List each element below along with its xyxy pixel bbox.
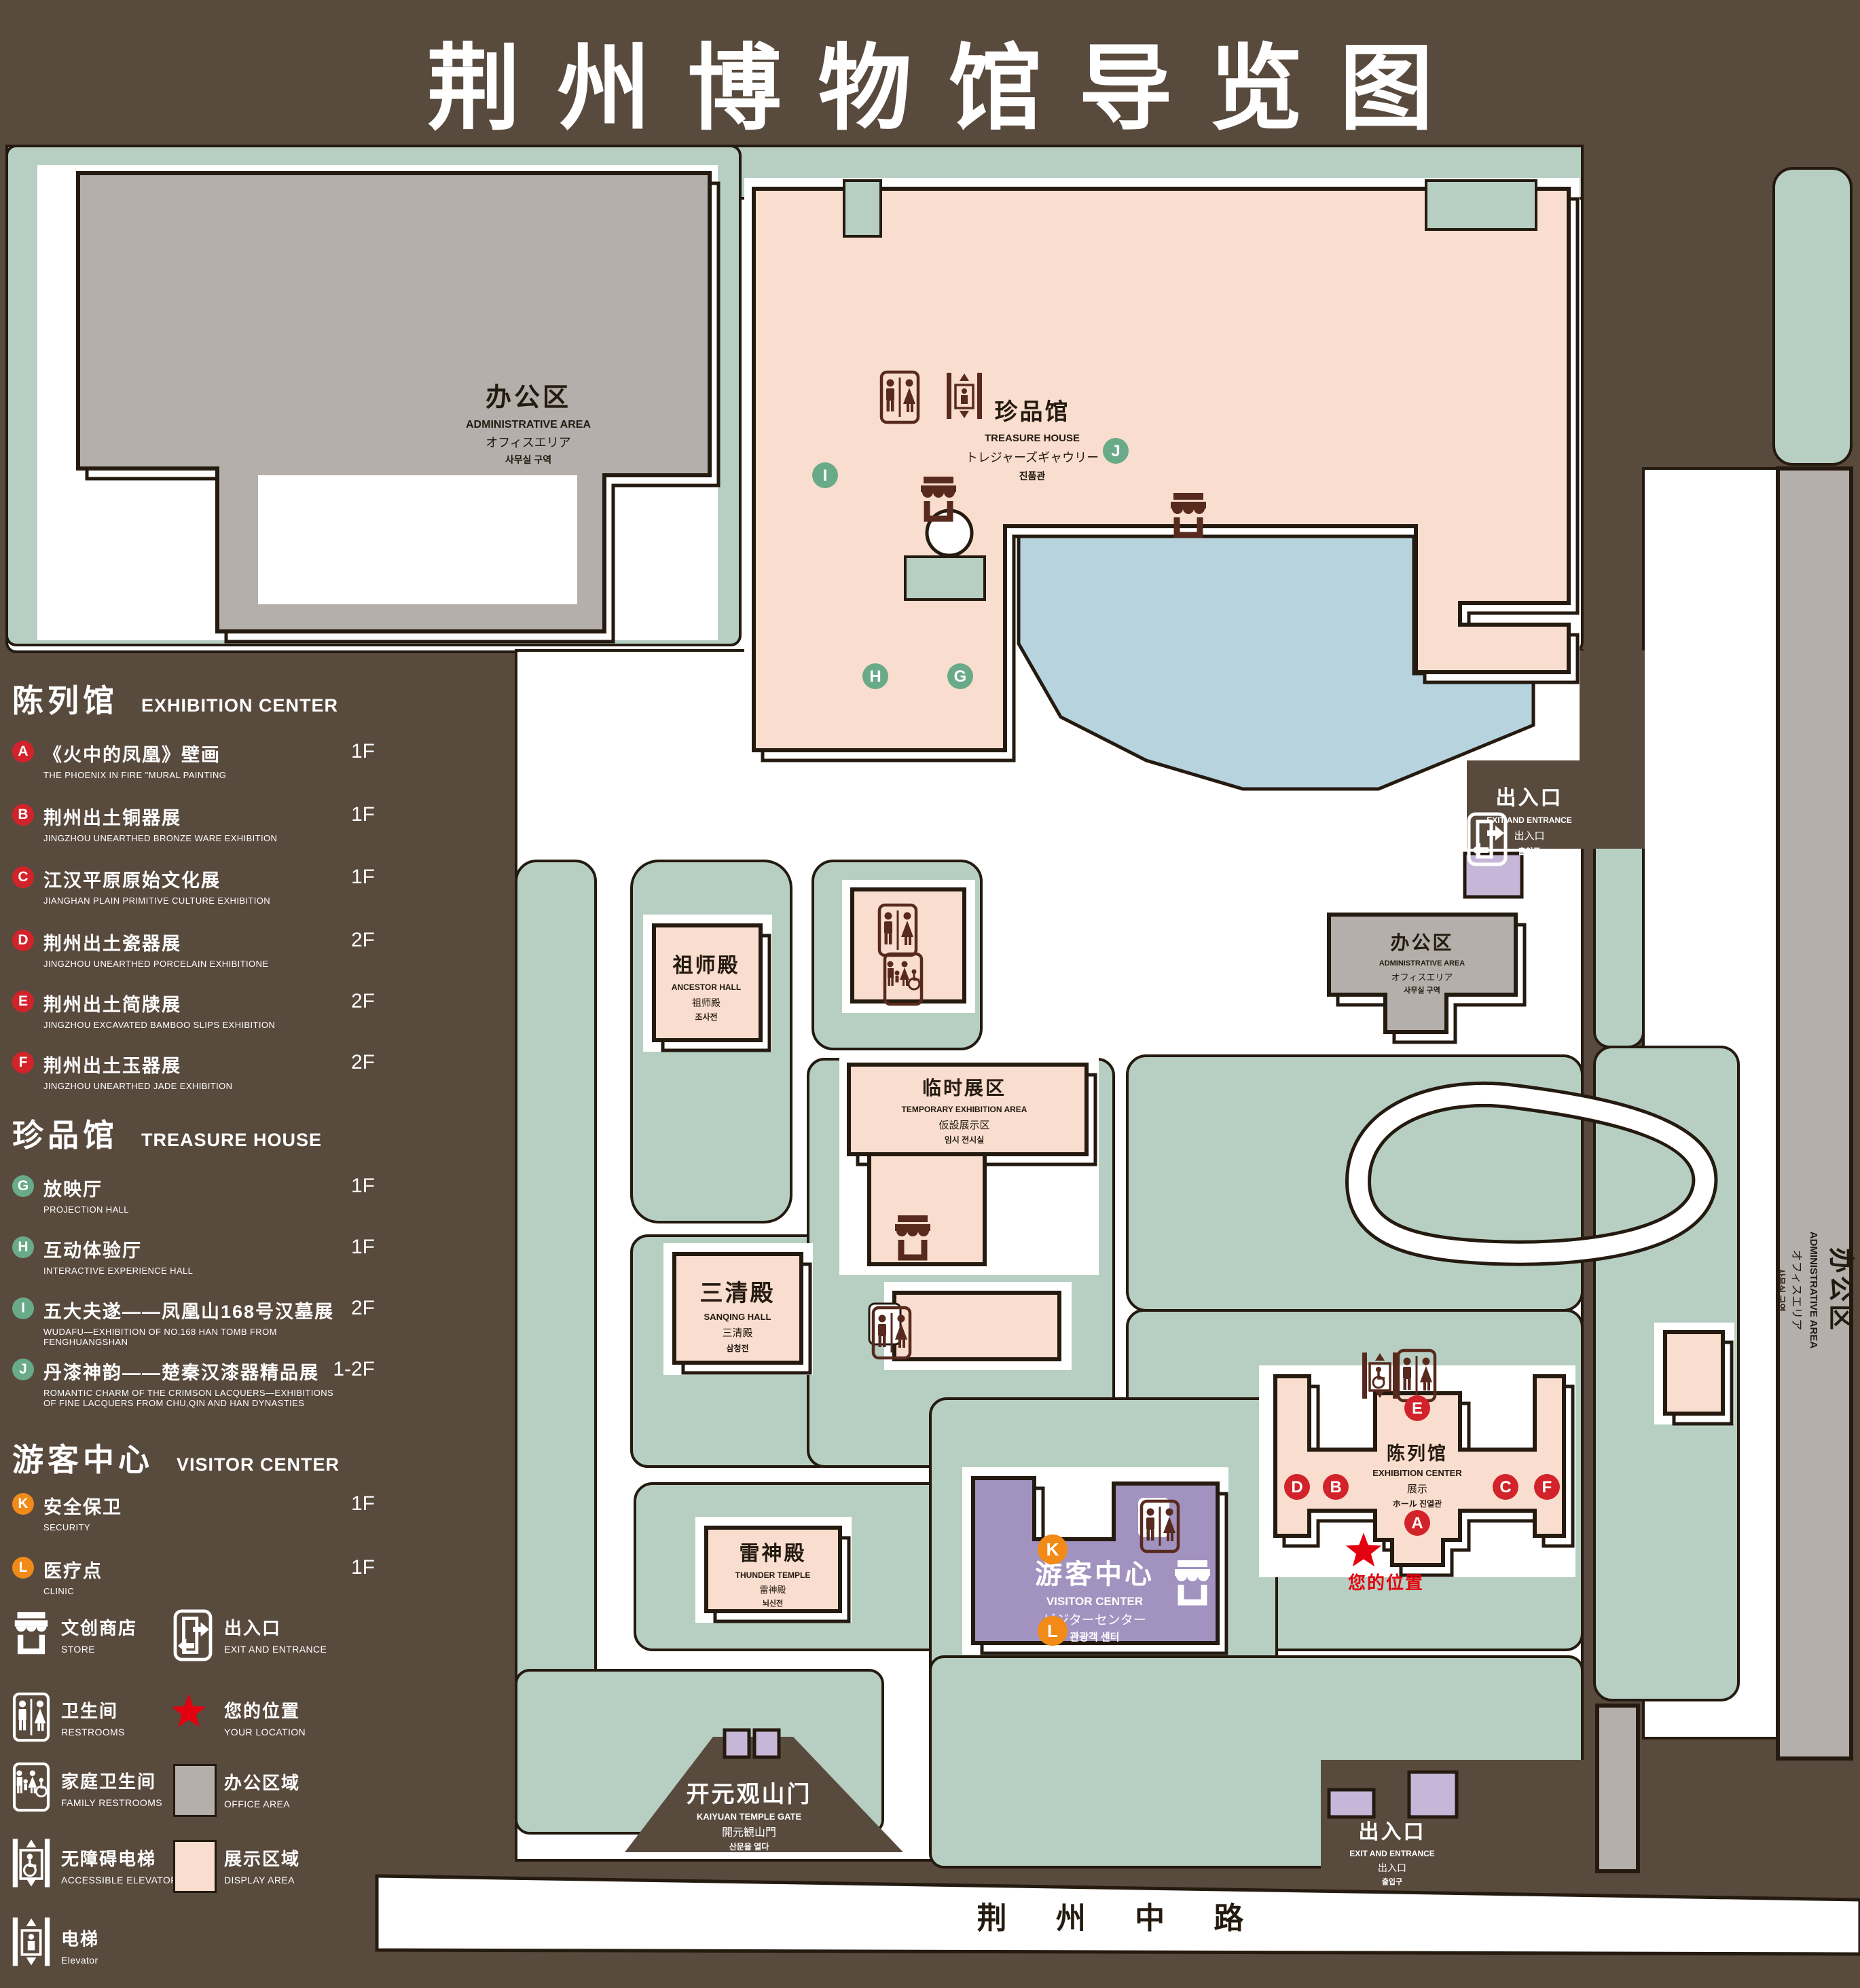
svg-text:THUNDER TEMPLE: THUNDER TEMPLE (735, 1570, 811, 1580)
svg-text:オフィスエリア: オフィスエリア (486, 436, 571, 449)
svg-text:뇌신전: 뇌신전 (763, 1598, 783, 1608)
svg-text:G: G (954, 667, 967, 686)
facility-store: 文创商店STORE (61, 1615, 137, 1655)
svg-text:EXIT AND ENTRANCE: EXIT AND ENTRANCE (1487, 815, 1572, 825)
badge-D: D (12, 929, 34, 951)
legend-item-G: G 放映厅PROJECTION HALL 1F (12, 1175, 384, 1215)
svg-text:H: H (869, 667, 881, 686)
marker-E: E (1404, 1395, 1430, 1421)
admin-courtyard (258, 475, 577, 604)
floor-D: 2F (351, 929, 375, 952)
legend-item-B: B 荆州出土铜器展JINGZHOU UNEARTHED BRONZE WARE … (12, 803, 384, 843)
svg-text:ANCESTOR HALL: ANCESTOR HALL (672, 982, 741, 992)
svg-text:B: B (1330, 1478, 1341, 1496)
legend-section-treasure: 珍品馆TREASURE HOUSE (12, 1111, 322, 1156)
svg-text:사무실 구역: 사무실 구역 (1404, 985, 1440, 995)
section-title-en: TREASURE HOUSE (141, 1130, 322, 1150)
facility-office-area: 办公区域OFFICE AREA (224, 1769, 300, 1809)
badge-C: C (12, 866, 34, 888)
section-title-en: EXHIBITION CENTER (141, 695, 338, 716)
legend-item-J: J 丹漆神韵——楚秦汉漆器精品展ROMANTIC CHARM OF THE CR… (12, 1358, 384, 1408)
svg-text:办公区: 办公区 (1390, 932, 1453, 953)
section-title-zh: 陈列馆 (12, 683, 118, 718)
legend-item-E: E 荆州出土简牍展JINGZHOU EXCAVATED BAMBOO SLIPS… (12, 990, 384, 1030)
svg-text:出入口: 出入口 (1359, 1821, 1426, 1843)
svg-text:祖师殿: 祖师殿 (673, 955, 740, 977)
badge-E: E (12, 991, 34, 1012)
svg-text:開元観山門: 開元観山門 (722, 1826, 776, 1839)
svg-text:ADMINISTRATIVE AREA: ADMINISTRATIVE AREA (1808, 1232, 1819, 1349)
svg-text:雷神殿: 雷神殿 (740, 1543, 807, 1565)
marker-J: J (1103, 438, 1129, 464)
elevator-icon (10, 1913, 53, 1973)
svg-text:TEMPORARY EXHIBITION AREA: TEMPORARY EXHIBITION AREA (902, 1105, 1027, 1114)
svg-text:조사전: 조사전 (695, 1012, 717, 1022)
svg-text:ホール 진열관: ホール 진열관 (1393, 1498, 1442, 1509)
section-title-zh: 游客中心 (12, 1442, 153, 1477)
legend-item-K: K 安全保卫SECURITY 1F (12, 1492, 384, 1532)
svg-text:出入口: 出入口 (1378, 1862, 1406, 1873)
legend-item-I: I 五大夫遂——凤凰山168号汉墓展WUDAFU—EXHIBITION OF N… (12, 1297, 384, 1347)
exit-icon (173, 1609, 213, 1661)
facility-restrooms: 卫生间RESTROOMS (61, 1697, 125, 1737)
badge-I: I (12, 1297, 34, 1319)
s-gate-block (1329, 1790, 1374, 1817)
floor-E: 2F (351, 990, 375, 1013)
facility-accessible-elevator: 无障碍电梯ACCESSIBLE ELEVATOR (61, 1845, 178, 1885)
road-name: 荆 州 中 路 (977, 1902, 1264, 1935)
accessible-elevator-icon (10, 1835, 53, 1894)
facility-elevator: 电梯Elevator (61, 1926, 99, 1966)
svg-text:三清殿: 三清殿 (722, 1327, 752, 1339)
svg-text:ADMINISTRATIVE AREA: ADMINISTRATIVE AREA (466, 419, 591, 430)
section-title-zh: 珍品馆 (12, 1118, 118, 1153)
marker-F: F (1534, 1474, 1560, 1500)
legend-item-L: L 医疗点CLINIC 1F (12, 1556, 384, 1596)
svg-text:VISITOR CENTER: VISITOR CENTER (1046, 1595, 1143, 1608)
badge-L: L (12, 1557, 34, 1579)
floor-C: 1F (351, 866, 375, 889)
lawn-patch (1774, 168, 1851, 464)
svg-text:A: A (1411, 1514, 1423, 1532)
svg-text:办公区: 办公区 (486, 384, 571, 412)
svg-text:陈列馆: 陈列馆 (1387, 1443, 1448, 1464)
svg-text:F: F (1542, 1478, 1552, 1496)
s-gate-block (1409, 1772, 1457, 1817)
badge-A: A (12, 741, 34, 762)
svg-text:산문을 열다: 산문을 열다 (729, 1841, 769, 1852)
svg-text:珍品馆: 珍品馆 (995, 399, 1070, 425)
badge-B: B (12, 804, 34, 826)
marker-B: B (1323, 1474, 1349, 1500)
legend-section-exhibition: 陈列馆EXHIBITION CENTER (12, 676, 338, 721)
badge-H: H (12, 1236, 34, 1258)
svg-text:出入口: 出入口 (1496, 787, 1563, 809)
floor-K: 1F (351, 1492, 375, 1515)
svg-text:TREASURE HOUSE: TREASURE HOUSE (985, 432, 1080, 444)
marker-G: G (947, 663, 973, 689)
svg-text:E: E (1412, 1399, 1423, 1418)
your-location-label: 您的位置 (1348, 1572, 1424, 1593)
svg-text:삼청전: 삼청전 (726, 1343, 748, 1353)
floor-H: 1F (351, 1236, 375, 1259)
legend-item-C: C 江汉平原原始文化展JIANGHAN PLAIN PRIMITIVE CULT… (12, 866, 384, 906)
gate-pillar (754, 1730, 779, 1757)
display-area-swatch (173, 1840, 217, 1893)
floor-F: 2F (351, 1051, 375, 1074)
badge-J: J (12, 1359, 34, 1380)
treasure-notch (844, 181, 881, 236)
facility-your-location: 您的位置YOUR LOCATION (224, 1697, 306, 1737)
svg-text:仮設展示区: 仮設展示区 (938, 1120, 989, 1131)
floor-G: 1F (351, 1175, 375, 1198)
legend-item-H: H 互动体验厅INTERACTIVE EXPERIENCE HALL 1F (12, 1236, 384, 1276)
family-restroom-icon (12, 1762, 50, 1812)
restroom-icon (12, 1692, 50, 1742)
section-title-en: VISITOR CENTER (177, 1454, 340, 1475)
svg-text:C: C (1499, 1478, 1511, 1496)
floor-L: 1F (351, 1556, 375, 1579)
marker-D: D (1284, 1474, 1310, 1500)
facility-display-area: 展示区域DISPLAY AREA (224, 1845, 300, 1885)
svg-text:L: L (1047, 1621, 1058, 1641)
svg-text:三清殿: 三清殿 (700, 1281, 776, 1306)
svg-text:展示: 展示 (1407, 1484, 1427, 1495)
marker-L: L (1038, 1616, 1068, 1646)
svg-text:SANQING HALL: SANQING HALL (704, 1312, 771, 1322)
svg-text:임시 전시실: 임시 전시실 (945, 1135, 985, 1145)
facility-family-restrooms: 家庭卫生间FAMILY RESTROOMS (61, 1768, 162, 1808)
svg-text:출입구: 출입구 (1518, 846, 1540, 856)
badge-G: G (12, 1175, 34, 1197)
floor-I: 2F (351, 1297, 375, 1320)
ne-gate-block (1465, 853, 1522, 897)
legend-item-D: D 荆州出土瓷器展JINGZHOU UNEARTHED PORCELAIN EX… (12, 929, 384, 969)
building-thunder-temple (706, 1528, 840, 1611)
treasure-notch (1426, 181, 1536, 229)
svg-text:祖师殿: 祖师殿 (692, 997, 721, 1008)
marker-A: A (1404, 1510, 1430, 1536)
marker-I: I (812, 462, 838, 488)
svg-text:J: J (1111, 442, 1120, 460)
svg-text:관광객 센터: 관광객 센터 (1070, 1631, 1119, 1643)
svg-text:ADMINISTRATIVE AREA: ADMINISTRATIVE AREA (1379, 959, 1465, 968)
svg-text:출입구: 출입구 (1382, 1877, 1402, 1886)
floor-J: 1-2F (333, 1358, 375, 1381)
svg-text:オフィスエリア: オフィスエリア (1391, 972, 1453, 982)
svg-text:사무실 구역: 사무실 구역 (1776, 1268, 1786, 1311)
svg-text:K: K (1046, 1539, 1059, 1560)
badge-F: F (12, 1052, 34, 1073)
gate-pillar (725, 1730, 749, 1757)
svg-text:사무실 구역: 사무실 구역 (505, 454, 551, 465)
floor-B: 1F (351, 803, 375, 826)
svg-text:D: D (1291, 1478, 1302, 1496)
office-area-swatch (173, 1764, 217, 1817)
marker-H: H (862, 663, 888, 689)
building-annex (1665, 1332, 1723, 1414)
svg-text:办公区: 办公区 (1826, 1247, 1855, 1333)
legend-item-A: A 《火中的凤凰》壁画THE PHOENIX IN FIRE "MURAL PA… (12, 740, 384, 780)
badge-K: K (12, 1493, 34, 1515)
facility-exit: 出入口EXIT AND ENTRANCE (224, 1615, 327, 1655)
treasure-courtyard (905, 557, 985, 600)
svg-text:EXIT AND ENTRANCE: EXIT AND ENTRANCE (1349, 1849, 1435, 1858)
guide-map-poster: 荆州博物馆导览图 GUIDE MAP OF JINGZHOU MUSEUM (0, 0, 1860, 1988)
svg-text:临时展区: 临时展区 (922, 1077, 1006, 1099)
svg-text:EXHIBITION CENTER: EXHIBITION CENTER (1372, 1468, 1462, 1478)
svg-text:I: I (823, 466, 828, 485)
svg-text:雷神殿: 雷神殿 (759, 1585, 786, 1595)
legend-item-F: F 荆州出土玉器展JINGZHOU UNEARTHED JADE EXHIBIT… (12, 1051, 384, 1091)
svg-text:开元观山门: 开元观山门 (687, 1782, 812, 1807)
store-icon (12, 1610, 50, 1655)
gray-walk-strip (1597, 1706, 1638, 1871)
building-temporary-lower (894, 1293, 1059, 1359)
location-star-icon (170, 1693, 208, 1731)
marker-K: K (1038, 1534, 1068, 1564)
floor-A: 1F (351, 740, 375, 763)
svg-text:オフィスエリア: オフィスエリア (1790, 1250, 1803, 1331)
svg-text:진품관: 진품관 (1019, 471, 1046, 481)
svg-text:トレジャーズギャウリー: トレジャーズギャウリー (966, 451, 1099, 464)
building-admin-strip (1778, 468, 1851, 1759)
svg-text:出入口: 出入口 (1514, 830, 1544, 842)
svg-text:KAIYUAN TEMPLE GATE: KAIYUAN TEMPLE GATE (697, 1811, 802, 1822)
marker-C: C (1493, 1474, 1518, 1500)
legend-section-visitor: 游客中心VISITOR CENTER (12, 1435, 340, 1480)
